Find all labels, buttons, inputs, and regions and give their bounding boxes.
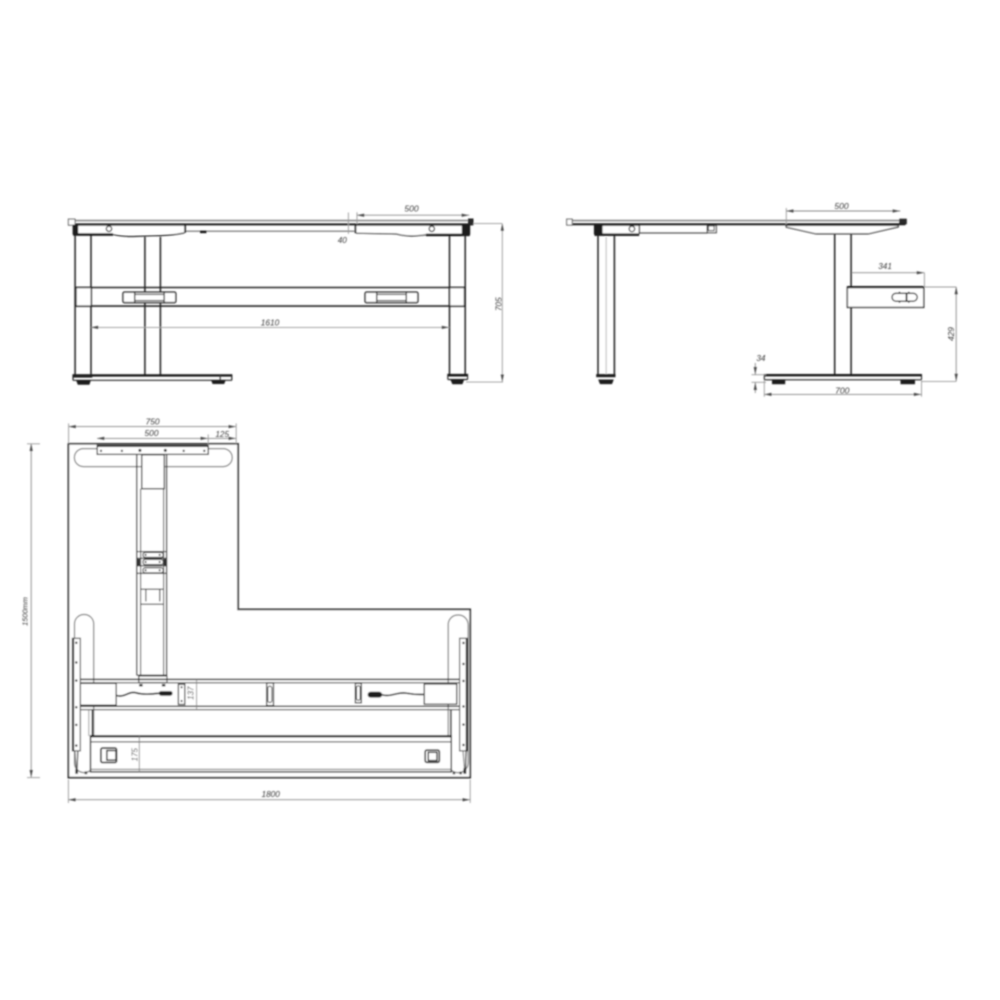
svg-text:429: 429: [946, 327, 956, 341]
svg-text:700: 700: [835, 386, 850, 396]
svg-text:175: 175: [130, 747, 139, 761]
svg-text:1500mm: 1500mm: [21, 597, 30, 626]
svg-text:750: 750: [146, 416, 160, 426]
svg-text:1610: 1610: [261, 317, 280, 327]
svg-text:500: 500: [145, 428, 159, 438]
svg-text:137: 137: [187, 686, 196, 700]
svg-text:40: 40: [338, 236, 348, 245]
svg-text:125: 125: [215, 430, 229, 439]
svg-text:34: 34: [756, 354, 766, 363]
svg-text:500: 500: [404, 204, 419, 214]
svg-text:500: 500: [834, 201, 849, 211]
svg-text:705: 705: [494, 297, 503, 311]
svg-text:341: 341: [878, 262, 892, 271]
svg-text:1800: 1800: [261, 789, 280, 799]
